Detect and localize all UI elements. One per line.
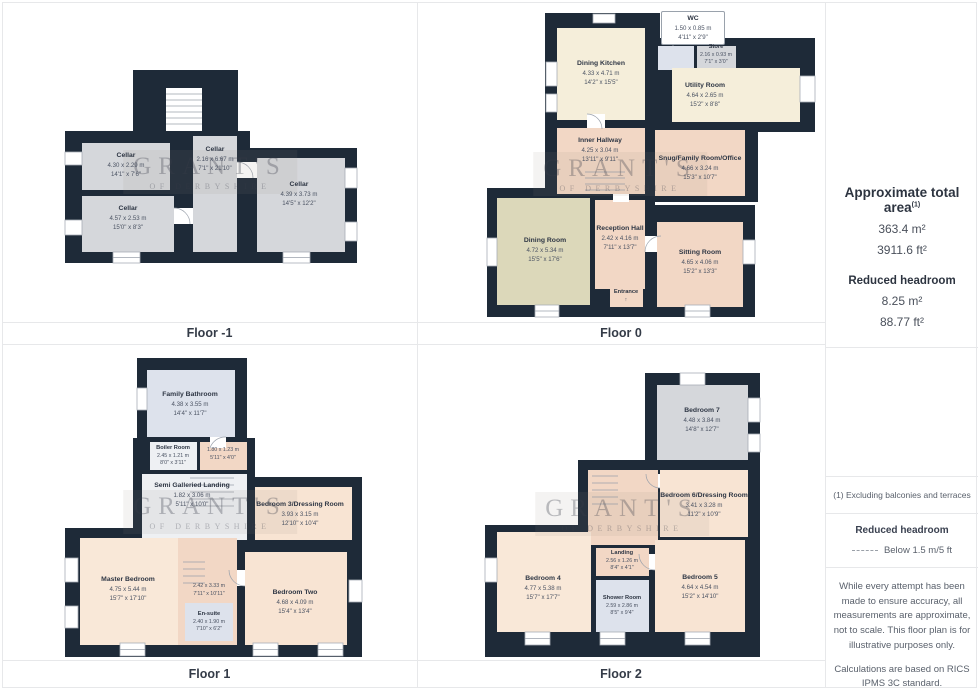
legend-title: Reduced headroom — [826, 525, 978, 536]
room-label-cellar-2: Cellar 4.57 x 2.53 m 15'0" x 8'3" — [110, 204, 147, 232]
sidebar-divider-2 — [826, 476, 978, 477]
room-label-snug: Snug/Family Room/Office 4.66 x 3.24 m 15… — [659, 154, 742, 182]
total-area-ft2: 3911.6 ft² — [826, 243, 978, 257]
room-label-bedroom-4: Bedroom 4 4.77 x 5.38 m 15'7" x 17'7" — [525, 574, 562, 602]
room-label-corridor: 2.42 x 3.33 m 7'11" x 10'11" — [193, 583, 225, 599]
room-label-bedroom-3: Bedroom 3/Dressing Room 3.93 x 3.15 m 12… — [256, 500, 344, 528]
standard-text: Calculations are based on RICS IPMS 3C s… — [826, 663, 978, 692]
room-label-cupboard: 1.80 x 1.23 m 5'11" x 4'0" — [207, 447, 239, 463]
total-area-m2: 363.4 m² — [826, 222, 978, 236]
floor-caption-0: Floor 0 — [417, 322, 825, 344]
room-label-reception-hall: Reception Hall 2.42 x 4.16 m 7'11" x 13'… — [596, 224, 643, 252]
room-label-sitting-room: Sitting Room 4.65 x 4.06 m 15'2" x 13'3" — [679, 248, 721, 276]
room-label-cellar-3: Cellar 2.16 x 6.67 m 7'1" x 21'10" — [197, 145, 234, 173]
floor-caption-1: Floor 1 — [2, 660, 417, 687]
disclaimer-section: While every attempt has been made to ens… — [826, 580, 978, 693]
floor-caption-2: Floor 2 — [417, 660, 825, 687]
room-label-bedroom-5: Bedroom 5 4.64 x 4.54 m 15'2" x 14'10" — [682, 573, 719, 601]
room-label-landing: Landing 2.56 x 1.26 m 8'4" x 4'1" — [606, 549, 638, 573]
entrance-arrow-icon: ↑ — [614, 296, 638, 304]
reduced-headroom-m2: 8.25 m² — [826, 294, 978, 308]
room-label-dining-room: Dining Room 4.72 x 5.34 m 15'5" x 17'6" — [524, 236, 566, 264]
reduced-headroom-title: Reduced headroom — [826, 275, 978, 287]
dashed-line-icon — [852, 550, 878, 551]
room-label-cellar-4: Cellar 4.39 x 3.73 m 14'5" x 12'2" — [281, 180, 318, 208]
room-label-en-suite: En-suite 2.40 x 1.90 m 7'10" x 6'2" — [193, 610, 225, 634]
footnote-ref: (1) — [912, 202, 921, 209]
sidebar-divider-1 — [826, 347, 978, 348]
room-label-semi-galleried-landing: Semi Galleried Landing 1.82 x 3.06 m 5'1… — [154, 481, 230, 509]
room-label-utility-room: Utility Room 4.64 x 2.65 m 15'2" x 8'8" — [685, 81, 725, 109]
floorplan-floor-minus1: GRANT'S OF DERBYSHIRE Cellar 4.30 x 2.29… — [0, 2, 417, 322]
floorplan-sheet: GRANT'S OF DERBYSHIRE Cellar 4.30 x 2.29… — [0, 0, 980, 693]
sidebar-divider-3 — [826, 513, 978, 514]
info-sidebar: Approximate total area(1) 363.4 m² 3911.… — [826, 2, 978, 686]
total-area-section: Approximate total area(1) 363.4 m² 3911.… — [826, 185, 978, 329]
floorplan-floor-0: GRANT'S OF DERBYSHIRE WC 1.50 x 0.85 m 4… — [417, 2, 825, 322]
room-label-store: Store 2.16 x 0.93 m 7'1" x 3'0" — [700, 43, 732, 67]
room-label-bedroom-two: Bedroom Two 4.68 x 4.09 m 15'4" x 13'4" — [273, 588, 318, 616]
room-label-family-bathroom: Family Bathroom 4.38 x 3.55 m 14'4" x 11… — [162, 390, 218, 418]
room-label-inner-hallway: Inner Hallway 4.25 x 3.04 m 13'11" x 9'1… — [578, 136, 622, 164]
stairs — [166, 88, 202, 131]
room-label-dining-kitchen: Dining Kitchen 4.33 x 4.71 m 14'2" x 15'… — [577, 59, 625, 87]
legend-section: Reduced headroom Below 1.5 m/5 ft — [826, 525, 978, 556]
floor-caption-minus1: Floor -1 — [2, 322, 417, 344]
footnote: (1) Excluding balconies and terraces — [826, 490, 978, 500]
entrance-label: Entrance ↑ — [614, 288, 638, 304]
room-label-bedroom-6: Bedroom 6/Dressing Room 3.41 x 3.28 m 11… — [660, 491, 748, 519]
room-label-cellar-1: Cellar 4.30 x 2.29 m 14'1" x 7'6" — [108, 151, 145, 179]
total-area-title: Approximate total area(1) — [826, 185, 978, 215]
legend-row: Below 1.5 m/5 ft — [826, 545, 978, 556]
room-label-master-bedroom: Master Bedroom 4.75 x 5.44 m 15'7" x 17'… — [101, 575, 155, 603]
sidebar-divider-4 — [826, 567, 978, 568]
wc-callout: WC 1.50 x 0.85 m 4'11" x 2'9" — [661, 11, 725, 45]
room-label-boiler-room: Boiler Room 2.45 x 1.21 m 8'0" x 3'11" — [156, 444, 190, 468]
room-label-shower-room: Shower Room 2.59 x 2.86 m 8'5" x 9'4" — [603, 594, 641, 618]
watermark-line2: OF DERBYSHIRE — [133, 182, 287, 191]
disclaimer-text: While every attempt has been made to ens… — [826, 580, 978, 654]
reduced-headroom-ft2: 88.77 ft² — [826, 315, 978, 329]
floorplan-floor-1: GRANT'S OF DERBYSHIRE Family Bathroom 4.… — [0, 344, 417, 660]
floorplan-floor-2: GRANT'S OF DERBYSHIRE Bedroom 7 4.48 x 3… — [417, 344, 825, 660]
room-label-bedroom-7: Bedroom 7 4.48 x 3.84 m 14'8" x 12'7" — [684, 406, 721, 434]
